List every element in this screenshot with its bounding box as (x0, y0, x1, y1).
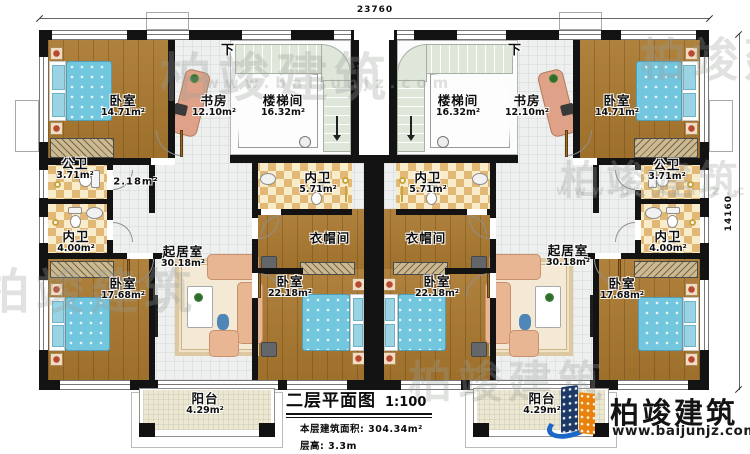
towel-ring-icon (399, 177, 406, 184)
unit-gap (374, 40, 389, 163)
window (457, 30, 506, 40)
unit-gap (359, 40, 374, 163)
door-leaf (127, 259, 130, 285)
nightstand (685, 122, 698, 135)
nightstand (50, 122, 63, 135)
bed-pillows (49, 61, 66, 121)
window (700, 57, 709, 142)
floor-height-label: 层高: (300, 441, 324, 452)
window (700, 170, 709, 198)
bed-pillows (384, 294, 398, 351)
bed (636, 61, 682, 121)
nightstand (685, 283, 698, 296)
dimension-right-value: 14160 (724, 195, 734, 231)
window (559, 30, 601, 40)
window (700, 280, 709, 350)
window (52, 30, 127, 40)
window (39, 57, 48, 142)
closet (50, 261, 114, 278)
drawing-title: 二层平面图 (286, 386, 376, 411)
nightstand (383, 352, 396, 365)
wall (149, 259, 155, 380)
balcony-post (139, 423, 155, 437)
roof-bay-outline (559, 12, 602, 30)
window (700, 217, 709, 243)
toilet-icon (311, 192, 322, 205)
window (60, 380, 130, 390)
closet (50, 138, 114, 158)
bed (638, 297, 683, 351)
bed-pillows (683, 297, 699, 351)
wall (374, 155, 518, 163)
sink-icon (260, 173, 276, 185)
cushion (217, 314, 229, 330)
dimension-line-right (739, 34, 740, 390)
floor-area-label: 本层建筑面积: (300, 424, 364, 435)
balcony-post (473, 423, 489, 437)
balcony-post (259, 423, 275, 437)
title-underline (286, 413, 432, 415)
wall (593, 163, 599, 213)
title-block: 二层平面图 1:100 本层建筑面积: 304.34m² 层高: 3.3m (286, 386, 432, 452)
window (618, 380, 688, 390)
window (39, 170, 48, 198)
towel-bar-icon (401, 186, 403, 202)
toilet-icon (656, 173, 669, 187)
sink-icon (645, 207, 662, 219)
nightstand (383, 278, 396, 291)
door-leaf (565, 130, 568, 157)
stair-treads-top (425, 44, 513, 74)
window (242, 30, 291, 40)
stair-newel (437, 136, 449, 148)
stair-direction-line (336, 116, 338, 136)
drawing-scale: 1:100 (385, 395, 426, 410)
towel-bar-icon (345, 186, 347, 202)
wall (593, 259, 599, 380)
bed-pillows (682, 61, 699, 121)
closet (634, 138, 698, 158)
bed (302, 294, 350, 351)
side-table (261, 342, 277, 357)
towel-ring-icon (52, 219, 59, 226)
dimension-top-value: 23760 (0, 5, 750, 15)
door-leaf (258, 273, 261, 298)
bed-pillows (49, 297, 65, 351)
bed (398, 294, 446, 351)
bed (66, 61, 112, 121)
plant-icon (194, 293, 203, 302)
armchair (509, 330, 539, 357)
party-wall (364, 163, 374, 380)
party-wall (374, 163, 384, 380)
towel-ring-icon (689, 219, 696, 226)
cushion (519, 314, 531, 330)
wall (635, 199, 700, 204)
toilet-icon (70, 215, 81, 228)
mid-bath-floor (396, 155, 496, 215)
towel-ring-icon (342, 177, 349, 184)
closet (300, 262, 355, 275)
window (39, 280, 48, 350)
wall (351, 40, 359, 163)
nightstand (685, 353, 698, 366)
toilet-tank (666, 207, 680, 214)
door-leaf (180, 130, 183, 157)
sink-icon (472, 173, 488, 185)
side-bay-outline (709, 100, 733, 152)
sink-icon (86, 207, 103, 219)
plant-icon (545, 293, 554, 302)
company-url: www.baijunjz.com (612, 423, 750, 439)
toilet-icon (667, 215, 678, 228)
logo-building-icon (548, 383, 608, 447)
sofa (489, 254, 541, 280)
window (147, 30, 189, 40)
stair-newel (299, 136, 311, 148)
towel-ring-icon (54, 181, 61, 188)
roof-bay-outline (146, 12, 189, 30)
toilet-tank (68, 207, 82, 214)
dimension-line-top (40, 18, 710, 19)
towel-ring-icon (687, 181, 694, 188)
bed (65, 297, 110, 351)
unit-right (374, 30, 709, 390)
stair-direction-arrow (407, 135, 415, 141)
side-table (471, 342, 487, 357)
toilet-tank (91, 170, 100, 188)
wall (48, 199, 113, 204)
closet (634, 261, 698, 278)
door-leaf (618, 259, 621, 285)
toilet-tank (425, 185, 438, 191)
door-leaf (487, 273, 490, 298)
nightstand (50, 353, 63, 366)
window (397, 30, 414, 40)
wall (389, 40, 397, 163)
stair-direction-line (410, 116, 412, 136)
mid-bath-floor (252, 155, 352, 215)
window (621, 30, 696, 40)
toilet-icon (426, 192, 437, 205)
unit-left (39, 30, 374, 390)
floor-plan-drawing: 柏竣建筑www.baijunjz.com柏竣建筑柏竣建筑柏竣建筑柏竣建筑www.… (0, 0, 750, 454)
floor-height-value: 3.3m (328, 441, 357, 452)
plant-icon (549, 74, 558, 83)
window (334, 30, 351, 40)
nightstand (50, 283, 63, 296)
side-bay-outline (15, 100, 39, 152)
floor-area-value: 304.34m² (368, 424, 423, 435)
toilet-tank (310, 185, 323, 191)
nightstand (685, 47, 698, 60)
stair-treads-top (235, 44, 323, 74)
window (39, 217, 48, 243)
armchair (209, 330, 239, 357)
nightstand (50, 47, 63, 60)
wall (230, 155, 374, 163)
toilet-icon (79, 173, 92, 187)
balcony-floor (143, 390, 271, 430)
wall (149, 163, 155, 213)
wall (490, 163, 496, 380)
stair-direction-arrow (333, 135, 341, 141)
title-underline (286, 417, 432, 418)
bed-pillows (350, 294, 364, 351)
plant-icon (190, 74, 199, 83)
closet (393, 262, 448, 275)
